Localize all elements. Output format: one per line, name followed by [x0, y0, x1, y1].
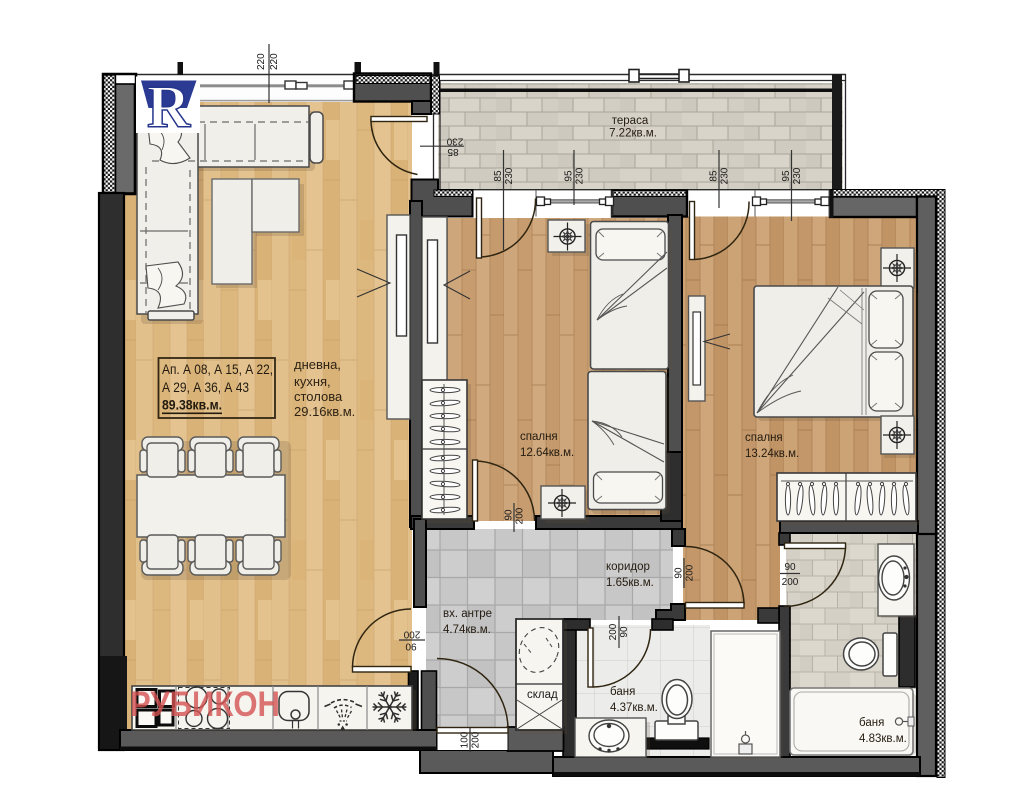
- svg-text:29.16кв.м.: 29.16кв.м.: [294, 404, 355, 419]
- svg-text:А 29, А 36, А 43: А 29, А 36, А 43: [162, 380, 249, 396]
- svg-text:13.24кв.м.: 13.24кв.м.: [745, 448, 799, 460]
- svg-text:230: 230: [575, 167, 586, 184]
- svg-text:вх. антре: вх. антре: [443, 608, 492, 620]
- svg-text:90: 90: [619, 626, 630, 638]
- svg-text:баня: баня: [610, 686, 635, 698]
- svg-text:200: 200: [515, 507, 526, 524]
- svg-text:4.37кв.м.: 4.37кв.м.: [610, 702, 658, 714]
- svg-text:РУБИКОН: РУБИКОН: [130, 685, 280, 724]
- svg-text:95: 95: [564, 170, 575, 182]
- svg-text:220: 220: [269, 53, 280, 70]
- svg-text:230: 230: [792, 167, 803, 184]
- svg-text:столова: столова: [294, 389, 343, 404]
- svg-text:90: 90: [504, 509, 515, 521]
- svg-text:230: 230: [504, 167, 515, 184]
- svg-text:85: 85: [447, 146, 459, 157]
- svg-text:Ап. А 08, А 15, А 22,: Ап. А 08, А 15, А 22,: [162, 362, 273, 378]
- svg-text:12.64кв.м.: 12.64кв.м.: [520, 447, 574, 459]
- svg-text:200: 200: [685, 564, 696, 581]
- svg-text:85: 85: [709, 170, 720, 182]
- svg-text:R: R: [147, 74, 191, 140]
- svg-text:спалня: спалня: [745, 432, 783, 444]
- svg-text:200: 200: [471, 731, 482, 748]
- svg-text:90: 90: [405, 641, 417, 652]
- svg-text:тераса: тераса: [612, 115, 649, 127]
- svg-text:4.74кв.м.: 4.74кв.м.: [443, 624, 491, 636]
- svg-text:220: 220: [256, 53, 267, 70]
- svg-text:90: 90: [674, 567, 685, 579]
- svg-text:спалня: спалня: [520, 431, 558, 443]
- svg-text:баня: баня: [859, 717, 884, 729]
- svg-text:95: 95: [781, 170, 792, 182]
- svg-text:склад: склад: [527, 689, 558, 701]
- svg-text:дневна,: дневна,: [294, 357, 341, 372]
- svg-text:100: 100: [460, 731, 471, 748]
- svg-text:коридор: коридор: [606, 561, 650, 573]
- svg-text:1.65кв.м.: 1.65кв.м.: [606, 577, 654, 589]
- svg-text:200: 200: [608, 623, 619, 640]
- svg-text:230: 230: [446, 136, 463, 147]
- svg-text:200: 200: [782, 577, 799, 588]
- svg-text:89.38кв.м.: 89.38кв.м.: [162, 398, 222, 414]
- svg-text:4.83кв.м.: 4.83кв.м.: [859, 733, 907, 745]
- svg-text:7.22кв.м.: 7.22кв.м.: [609, 128, 657, 140]
- svg-text:кухня,: кухня,: [294, 374, 331, 389]
- svg-text:85: 85: [493, 170, 504, 182]
- svg-text:90: 90: [784, 562, 796, 573]
- svg-text:230: 230: [720, 167, 731, 184]
- svg-text:200: 200: [403, 629, 420, 640]
